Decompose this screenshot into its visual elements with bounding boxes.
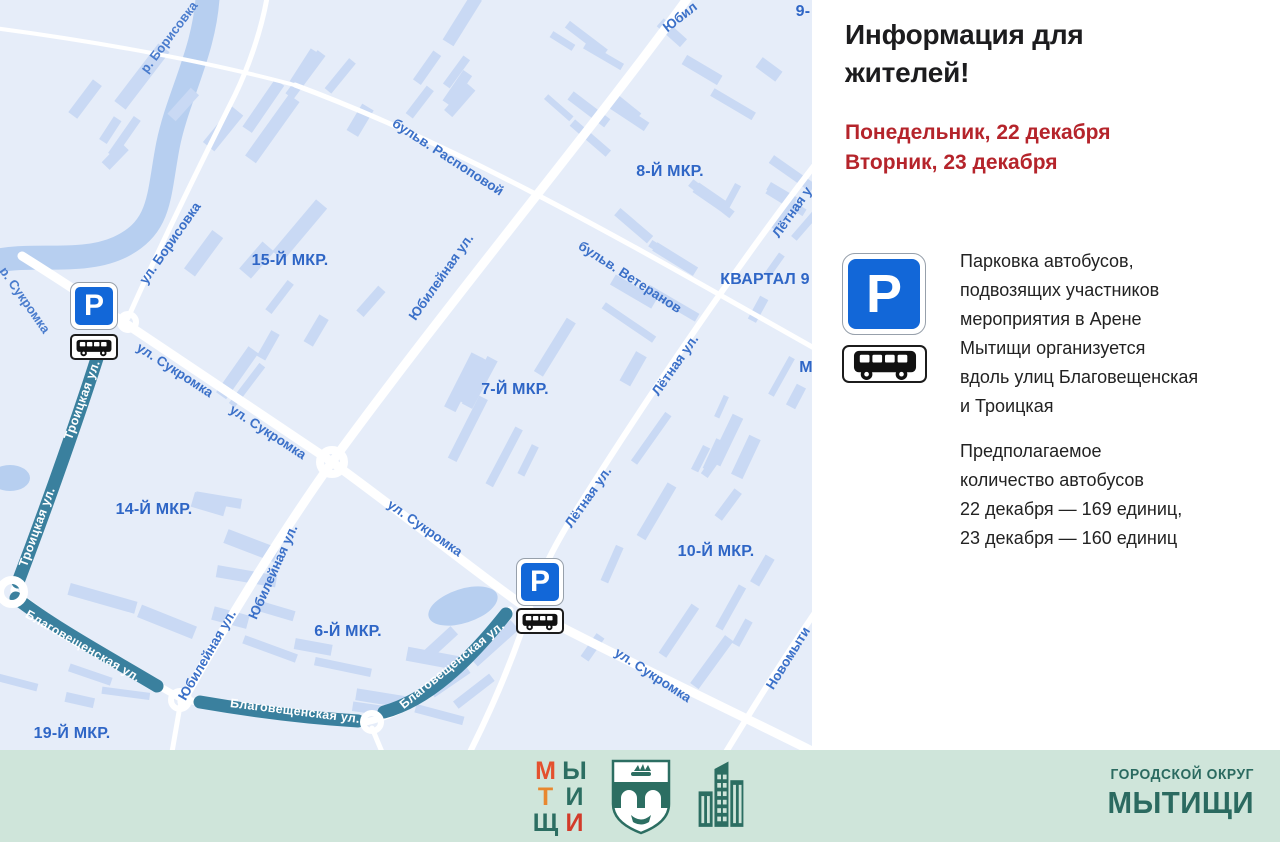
brand-letter: Щ xyxy=(531,810,560,836)
bus-plate-legend xyxy=(842,345,927,383)
brand-letter: М xyxy=(531,758,560,784)
parking-sign-legend: Р xyxy=(842,253,926,335)
municipality-wordmark: ГОРОДСКОЙ ОКРУГ МЫТИЩИ xyxy=(1098,766,1254,821)
infographic-canvas: 15-Й МКР.8-Й МКР.КВАРТАЛ 97-Й МКР.14-Й М… xyxy=(0,0,1280,842)
mytishchi-coat-of-arms-icon xyxy=(609,758,673,836)
info-panel: Информация для жителей! Понедельник, 22 … xyxy=(812,0,1280,750)
city-map: 15-Й МКР.8-Й МКР.КВАРТАЛ 97-Й МКР.14-Й М… xyxy=(0,0,812,750)
event-dates: Понедельник, 22 декабря Вторник, 23 дека… xyxy=(845,118,1110,178)
bus-icon xyxy=(76,338,112,357)
parking-letter: Р xyxy=(848,259,920,329)
bus-plate-west xyxy=(70,334,118,360)
parking-description: Парковка автобусов, подвозящих участнико… xyxy=(960,247,1265,421)
org-title: МЫТИЩИ xyxy=(1106,785,1254,821)
footer-bar: МЫТИЩИ xyxy=(0,750,1280,842)
roundabouts xyxy=(0,314,381,731)
bus-icon xyxy=(522,612,558,631)
bus-plate-south xyxy=(516,608,564,634)
footer-logos: МЫТИЩИ xyxy=(531,757,749,837)
map-base-drawing xyxy=(0,0,812,750)
parking-letter: Р xyxy=(75,287,113,325)
bus-icon xyxy=(853,348,917,381)
bus-count-description: Предполагаемое количество автобусов 22 д… xyxy=(960,437,1265,553)
parking-letter: Р xyxy=(521,563,559,601)
org-subtitle: ГОРОДСКОЙ ОКРУГ xyxy=(1110,766,1254,783)
brand-letter: Ы xyxy=(560,758,589,784)
page-title: Информация для жителей! xyxy=(845,16,1084,92)
brand-letter: И xyxy=(560,810,589,836)
parking-sign-west: Р xyxy=(70,282,118,330)
brand-letter: И xyxy=(560,784,589,810)
parking-sign-south: Р xyxy=(516,558,564,606)
brand-letter: Т xyxy=(531,784,560,810)
administration-building-icon xyxy=(693,759,749,835)
roads xyxy=(0,0,812,750)
mytishchi-brand-logo: МЫТИЩИ xyxy=(531,758,589,836)
